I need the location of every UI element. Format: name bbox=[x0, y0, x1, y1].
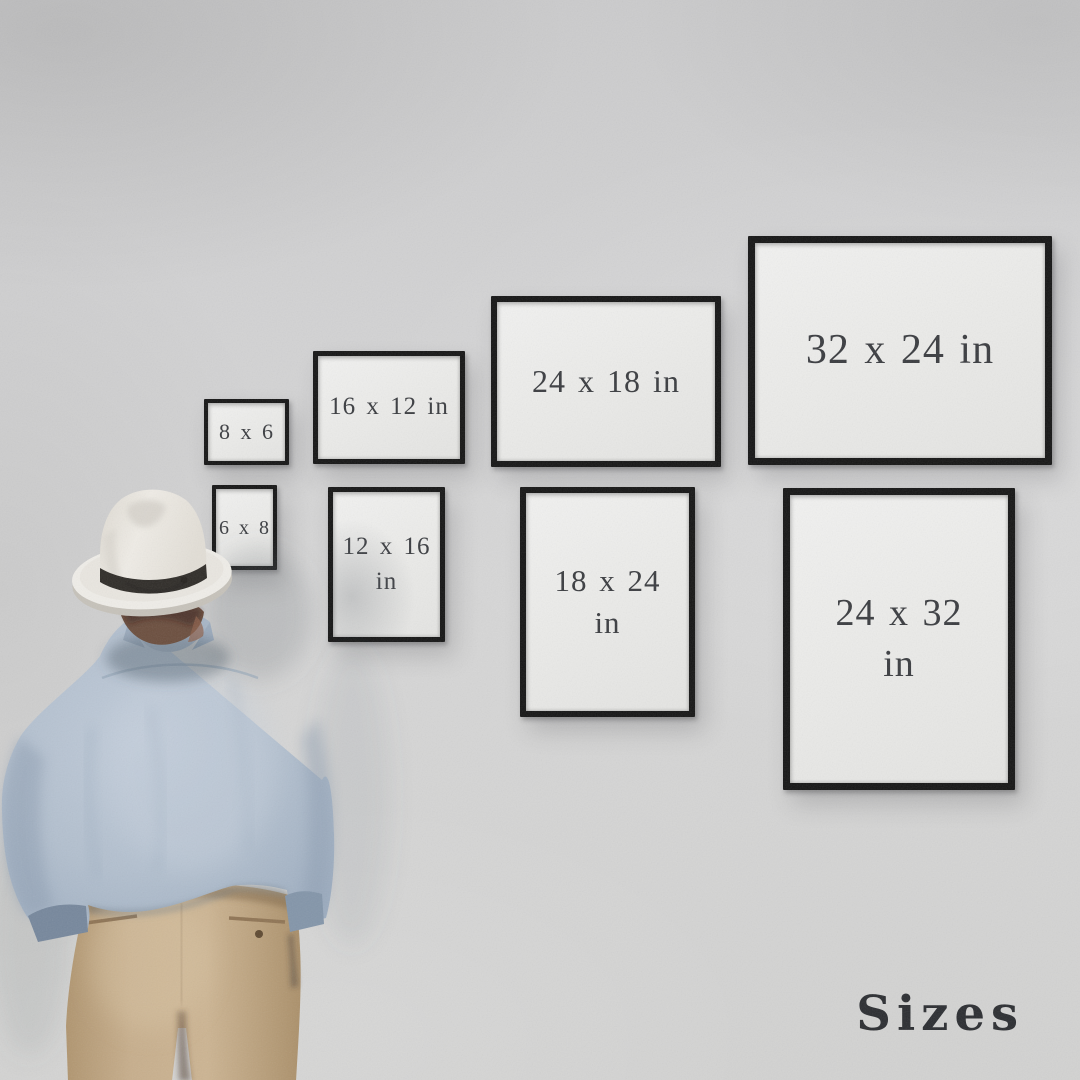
size-label: 24 x 18 in bbox=[532, 361, 680, 403]
frame-paper: 8 x 6 bbox=[208, 403, 285, 461]
size-label: 8 x 6 bbox=[219, 418, 274, 447]
frame-paper: 16 x 12 in bbox=[318, 356, 460, 459]
size-label: 24 x 32 bbox=[836, 589, 963, 638]
shirt-cuff bbox=[285, 891, 324, 932]
size-frame-18x24: 18 x 24 in bbox=[520, 487, 695, 717]
frame-paper: 24 x 18 in bbox=[497, 302, 715, 461]
fedora-hat bbox=[70, 490, 235, 622]
man-figure bbox=[0, 466, 470, 1080]
size-label-unit: in bbox=[883, 640, 915, 689]
frame-paper: 18 x 24 in bbox=[526, 493, 689, 711]
pocket-button bbox=[255, 930, 263, 938]
size-frame-24x32: 24 x 32 in bbox=[783, 488, 1015, 790]
size-frame-32x24: 32 x 24 in bbox=[748, 236, 1052, 465]
size-frame-16x12: 16 x 12 in bbox=[313, 351, 465, 464]
size-label: 18 x 24 bbox=[555, 561, 661, 601]
frame-paper: 32 x 24 in bbox=[755, 243, 1045, 458]
size-label: 16 x 12 in bbox=[329, 391, 449, 424]
size-frame-24x18: 24 x 18 in bbox=[491, 296, 721, 467]
sizes-caption: Sizes bbox=[856, 986, 1024, 1042]
frame-paper: 24 x 32 in bbox=[790, 495, 1008, 783]
size-label-unit: in bbox=[594, 603, 620, 643]
size-label: 32 x 24 in bbox=[806, 323, 994, 378]
size-guide-scene: 8 x 6 16 x 12 in 24 x 18 in 32 x 24 in 6… bbox=[0, 0, 1080, 1080]
size-frame-8x6: 8 x 6 bbox=[204, 399, 289, 465]
